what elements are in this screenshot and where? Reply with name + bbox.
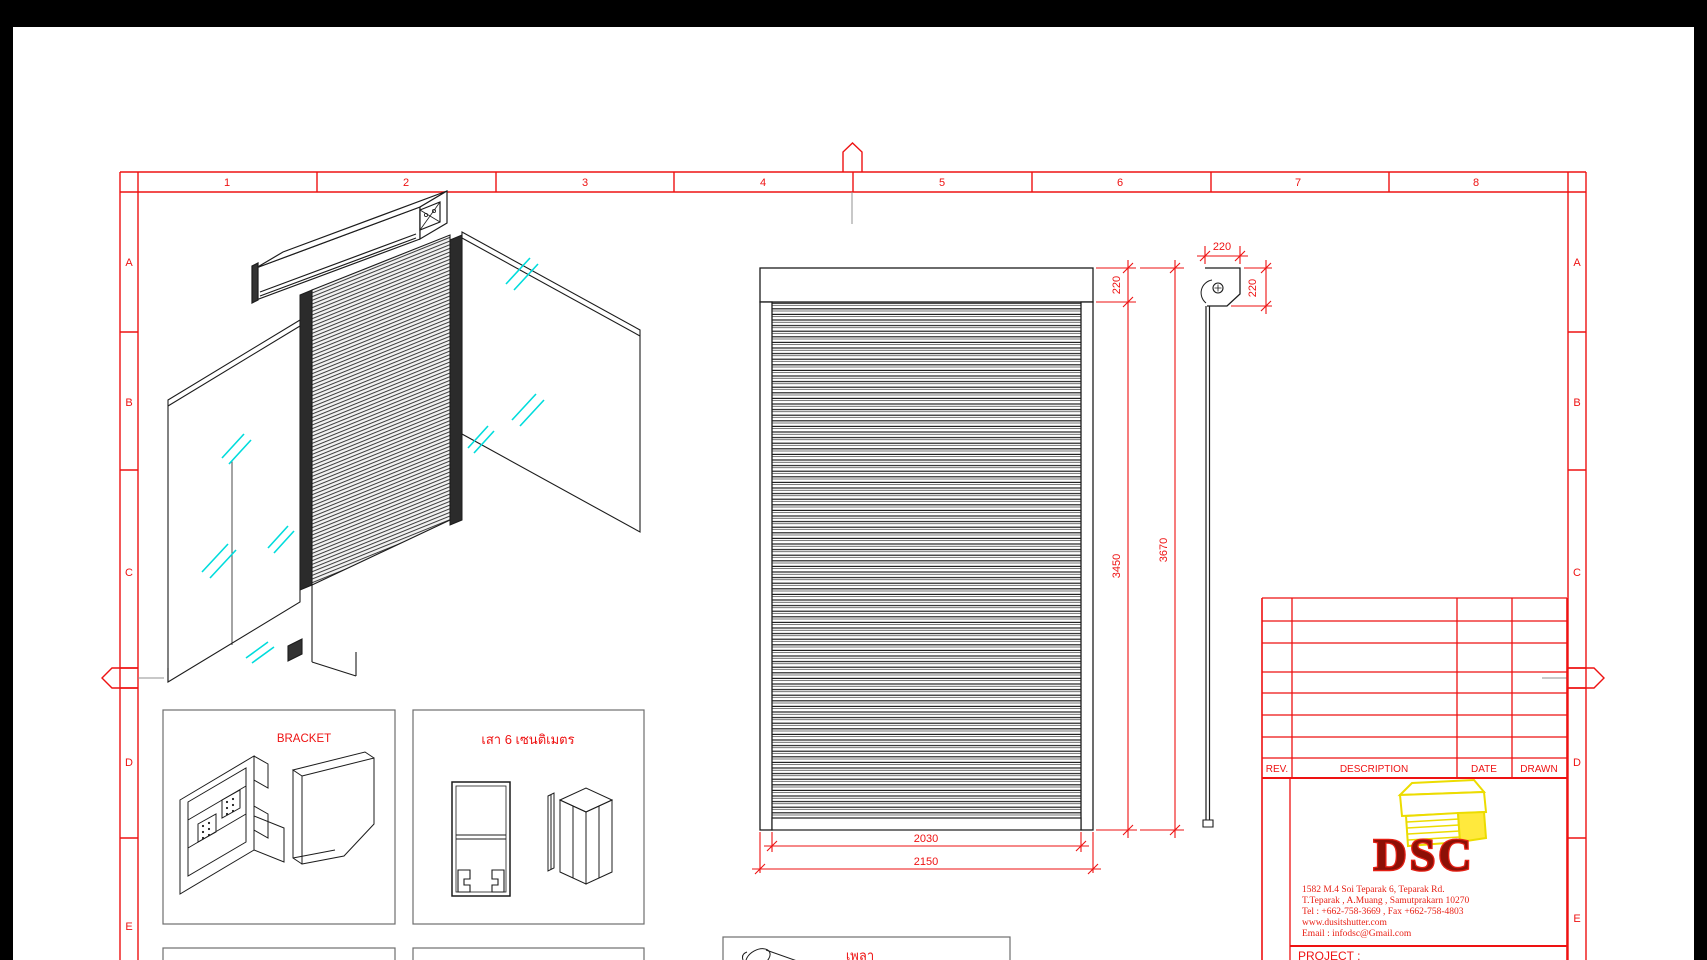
address-line-4: www.dusitshutter.com <box>1302 918 1387 928</box>
partial-panel-left <box>163 948 395 960</box>
title-block: REV. DESCRIPTION DATE DRAWN DSC 1582 M.4… <box>1262 598 1567 960</box>
frame-row-letters-right: A B C D E <box>1573 257 1581 925</box>
drawn-header: DRAWN <box>1520 764 1557 775</box>
row-e-left: E <box>125 921 132 933</box>
bracket-detail-panel: BRACKET <box>163 710 395 924</box>
dim-total-height: 3670 <box>1158 538 1170 562</box>
col-8: 8 <box>1473 177 1479 189</box>
row-e-right: E <box>1573 913 1580 925</box>
section-curl <box>1201 280 1212 303</box>
row-b-left: B <box>125 397 132 409</box>
elevation-bottom-bar <box>772 818 1081 830</box>
section-bottom-foot <box>1203 820 1213 827</box>
frame-row-letters-left: A B C D E <box>125 257 133 933</box>
left-guide-rail-iso <box>300 290 312 590</box>
row-c-left: C <box>125 567 133 579</box>
drawing-sheet-viewer: 1 2 3 4 5 6 7 8 A B C D E A B C D E <box>0 0 1707 960</box>
elevation-right-guide <box>1081 302 1093 830</box>
row-d-right: D <box>1573 757 1581 769</box>
frame-column-numbers: 1 2 3 4 5 6 7 8 <box>224 177 1479 189</box>
date-header: DATE <box>1471 764 1497 775</box>
project-label: PROJECT : <box>1298 949 1360 960</box>
shutter-curtain-iso <box>312 235 450 585</box>
col-7: 7 <box>1295 177 1301 189</box>
side-section-view <box>1201 268 1240 827</box>
bracket-panel-label: BRACKET <box>277 733 331 745</box>
address-line-1: 1582 M.4 Soi Teparak 6, Teparak Rd. <box>1302 885 1445 895</box>
row-d-left: D <box>125 757 133 769</box>
company-logo: DSC <box>1373 780 1486 880</box>
company-address: 1582 M.4 Soi Teparak 6, Teparak Rd. T.Te… <box>1302 885 1469 939</box>
right-guide-rail-iso <box>450 235 462 525</box>
logo-text: DSC <box>1373 829 1474 880</box>
elevation-hood <box>760 268 1093 302</box>
address-line-5: Email : infodsc@Gmail.com <box>1302 928 1412 939</box>
elevation-left-guide <box>760 302 772 830</box>
row-a-right: A <box>1573 257 1581 269</box>
col-6: 6 <box>1117 177 1123 189</box>
dim-curtain-height: 3450 <box>1111 554 1123 578</box>
north-pentagon-marker <box>843 143 862 172</box>
description-header: DESCRIPTION <box>1340 764 1408 775</box>
elevation-curtain-slats <box>772 302 1081 830</box>
address-line-3: Tel : +662-758-3669 , Fax +662-758-4803 <box>1302 907 1464 917</box>
col-3: 3 <box>582 177 588 189</box>
shaft-detail-panel: เพลา <box>723 937 1010 960</box>
partial-panel-right <box>413 948 644 960</box>
post-detail-panel: เสา 6 เซนติเมตร <box>413 710 644 924</box>
revision-table-headers: REV. DESCRIPTION DATE DRAWN <box>1266 764 1558 775</box>
dim-section-width: 220 <box>1213 241 1231 253</box>
col-2: 2 <box>403 177 409 189</box>
dim-overall-width: 2150 <box>914 856 938 868</box>
row-b-right: B <box>1573 397 1580 409</box>
col-5: 5 <box>939 177 945 189</box>
isometric-view <box>168 191 640 682</box>
front-elevation-view <box>760 268 1093 830</box>
dim-hood-height: 220 <box>1111 276 1123 294</box>
left-glass-wall <box>168 320 300 682</box>
col-4: 4 <box>760 177 766 189</box>
right-glass-wall <box>462 232 640 532</box>
left-letterbox-bar <box>0 27 13 960</box>
row-c-right: C <box>1573 567 1581 579</box>
dim-section-height: 220 <box>1247 279 1259 297</box>
row-a-left: A <box>125 257 133 269</box>
col-1: 1 <box>224 177 230 189</box>
right-letterbox-bar <box>1694 27 1707 960</box>
shaft-panel-label: เพลา <box>846 948 874 960</box>
post-panel-label: เสา 6 เซนติเมตร <box>481 732 574 747</box>
rev-header: REV. <box>1266 764 1288 775</box>
address-line-2: T.Teparak , A.Muang , Samutprakarn 10270 <box>1302 896 1469 906</box>
top-letterbox-bar <box>0 0 1707 27</box>
section-curtain-line <box>1206 306 1210 820</box>
dim-opening-width: 2030 <box>914 833 938 845</box>
